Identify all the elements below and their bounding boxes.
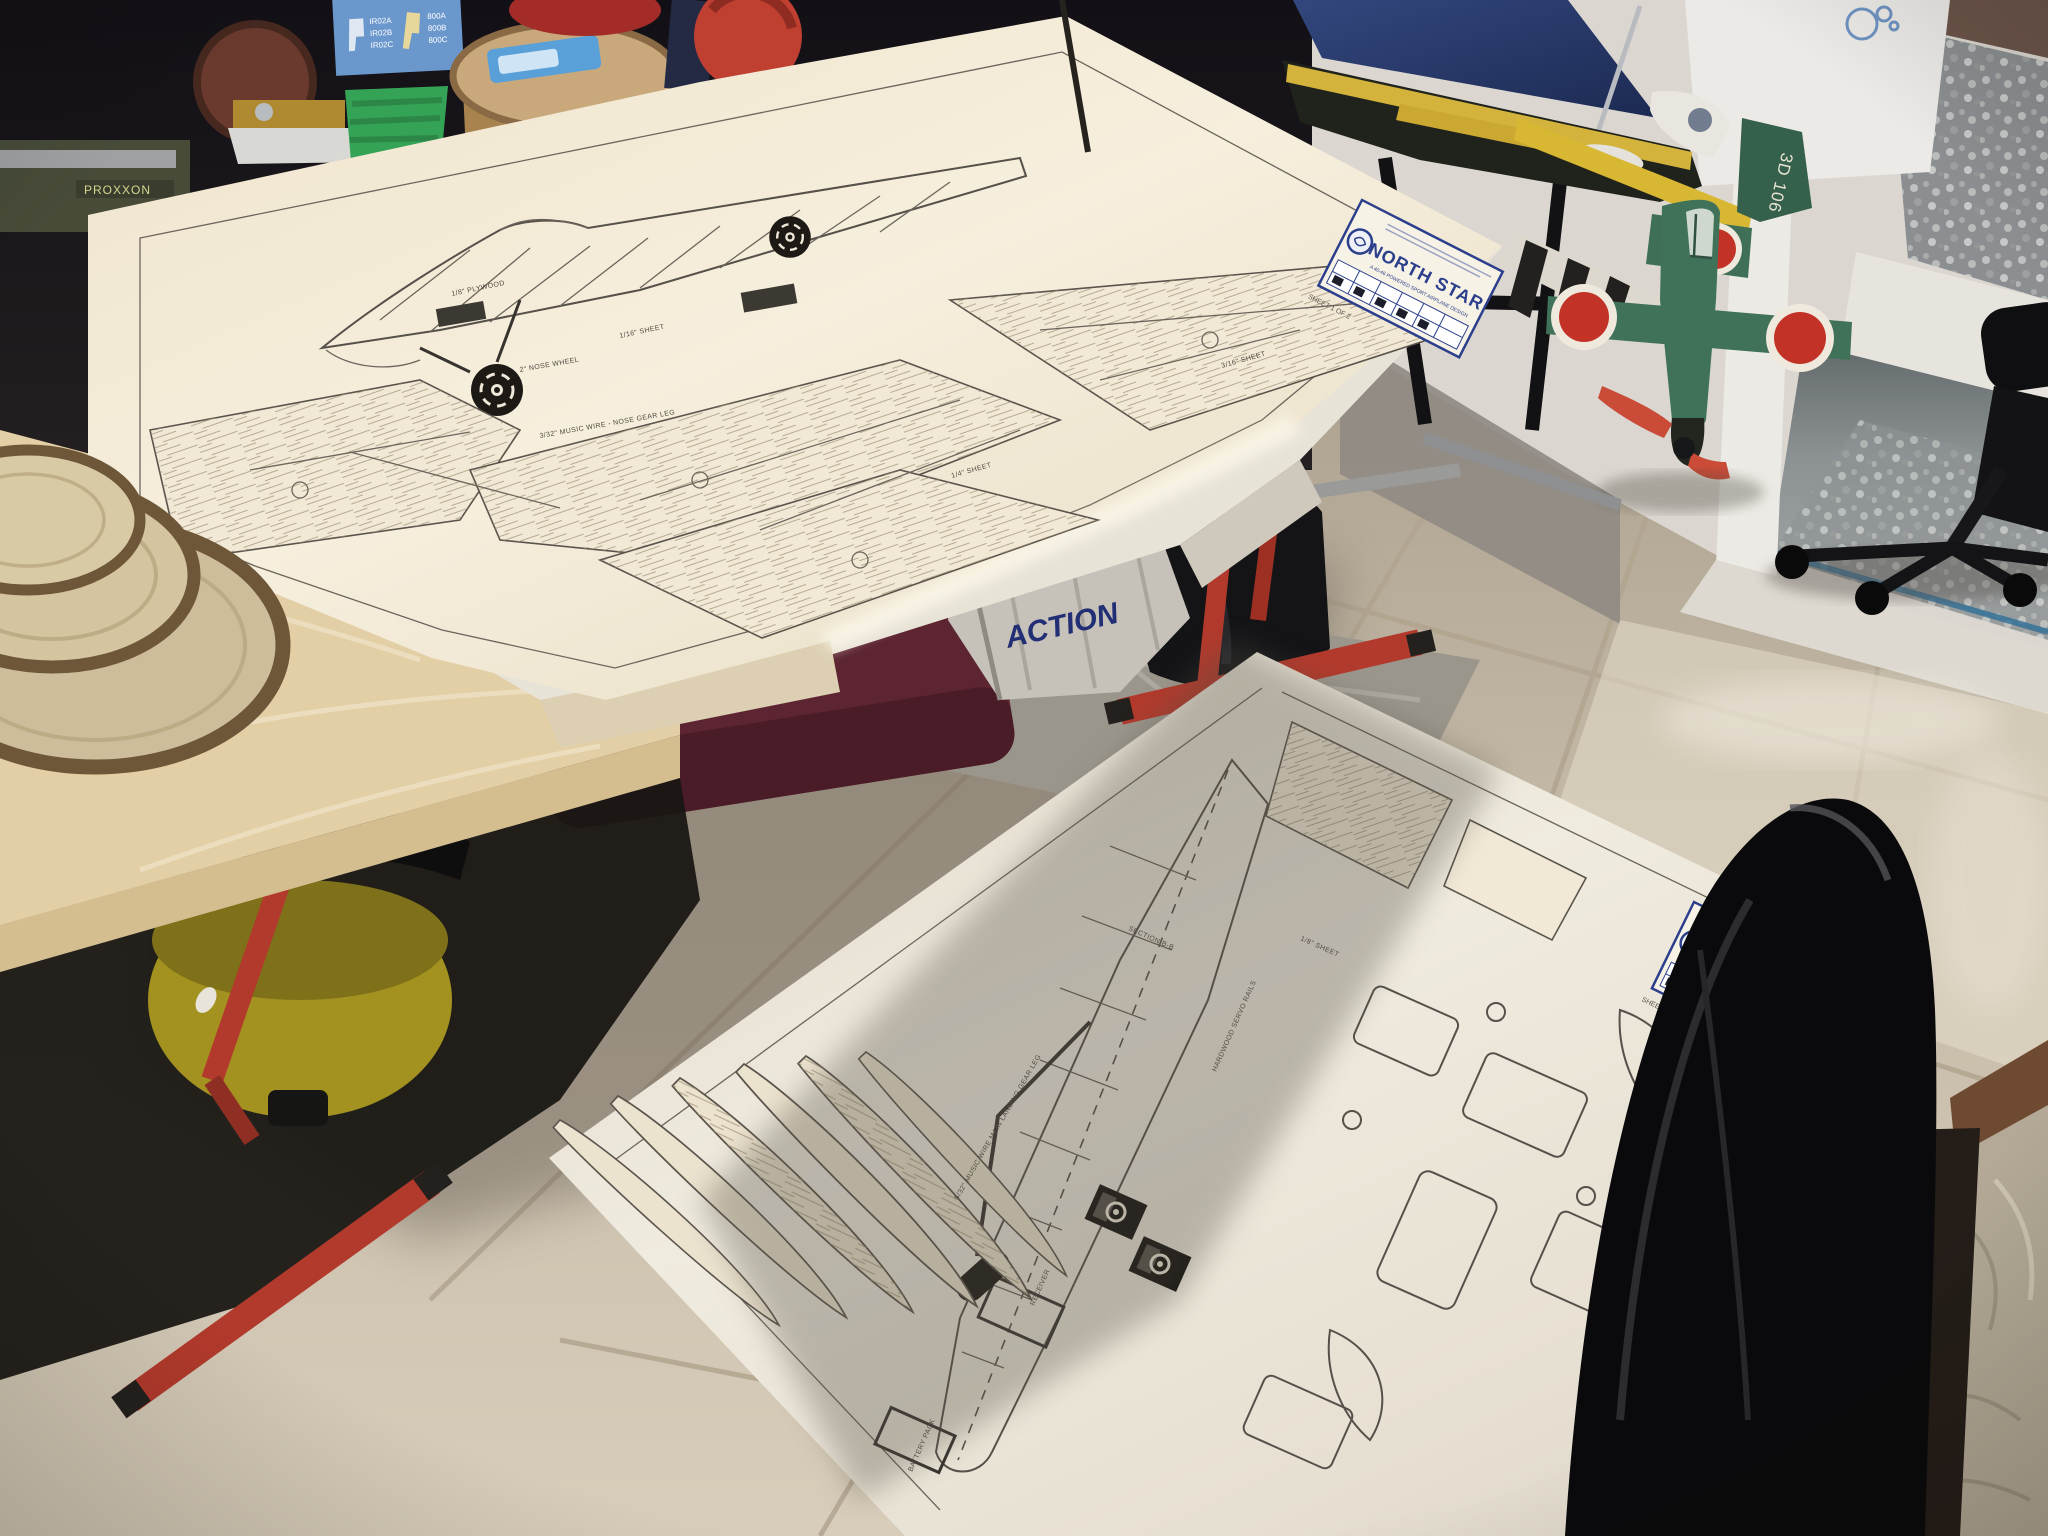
workshop-photo: PROXXON IR02A IR02B IR02C 800A 800B 800C xyxy=(0,0,2048,1536)
scene-canvas: PROXXON IR02A IR02B IR02C 800A 800B 800C xyxy=(0,0,2048,1536)
photo-vignette xyxy=(0,0,2048,1536)
